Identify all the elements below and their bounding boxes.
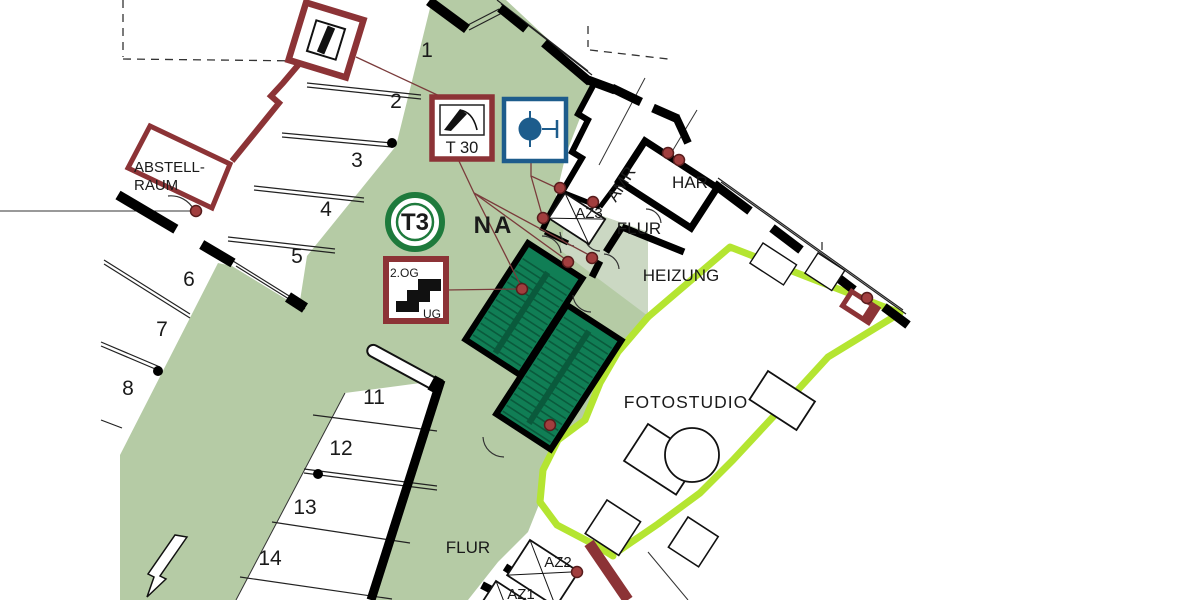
fotostudio-round-table xyxy=(665,428,719,482)
shaft-label-az1: AZ1 xyxy=(507,586,535,600)
main-switch-icon xyxy=(289,3,364,78)
stair-level-icon: 2.OG UG xyxy=(386,259,446,321)
shaft-label-az3: AZ3 xyxy=(575,205,603,222)
na-marker: NA xyxy=(474,212,515,239)
room-label-fotostudio: FOTOSTUDIO xyxy=(624,392,748,412)
room-label-abstellraum-2: RAUM xyxy=(134,177,178,194)
parking-stall-13: 13 xyxy=(293,496,316,519)
parking-stall-14: 14 xyxy=(258,547,282,570)
parking-stall-2: 2 xyxy=(390,90,402,113)
shaft-label-az2: AZ2 xyxy=(544,554,572,571)
parking-stall-8: 8 xyxy=(122,377,134,400)
room-label-heizung: HEIZUNG xyxy=(643,266,720,285)
room-label-flur-upper: FLUR xyxy=(617,219,661,238)
floor-plan-drawing: T 30 T3 NA 2.OG UG ABSTELL- RAUM AMR HAR… xyxy=(0,0,1200,600)
ventilation-icon xyxy=(504,99,566,161)
t30-fire-door-icon: T 30 xyxy=(432,97,492,159)
t3-badge: T3 xyxy=(388,195,442,249)
parking-stall-12: 12 xyxy=(329,437,352,460)
parking-stall-1: 1 xyxy=(421,39,433,62)
parking-stall-5: 5 xyxy=(291,245,303,268)
floor-plan-page: T 30 T3 NA 2.OG UG ABSTELL- RAUM AMR HAR… xyxy=(0,0,1200,600)
room-label-har: HAR xyxy=(672,173,708,192)
t30-label: T 30 xyxy=(446,139,479,157)
parking-stall-4: 4 xyxy=(320,198,332,221)
stair-level-bottom-label: UG xyxy=(423,307,441,321)
parking-stall-11: 11 xyxy=(363,386,385,409)
parking-stall-6: 6 xyxy=(183,268,195,291)
room-label-abstellraum-1: ABSTELL- xyxy=(134,159,205,176)
room-label-flur-lower: FLUR xyxy=(446,538,490,557)
t3-label: T3 xyxy=(401,209,429,236)
parking-stall-7: 7 xyxy=(156,318,168,341)
parking-stall-3: 3 xyxy=(351,149,363,172)
stair-level-top-label: 2.OG xyxy=(390,266,419,280)
